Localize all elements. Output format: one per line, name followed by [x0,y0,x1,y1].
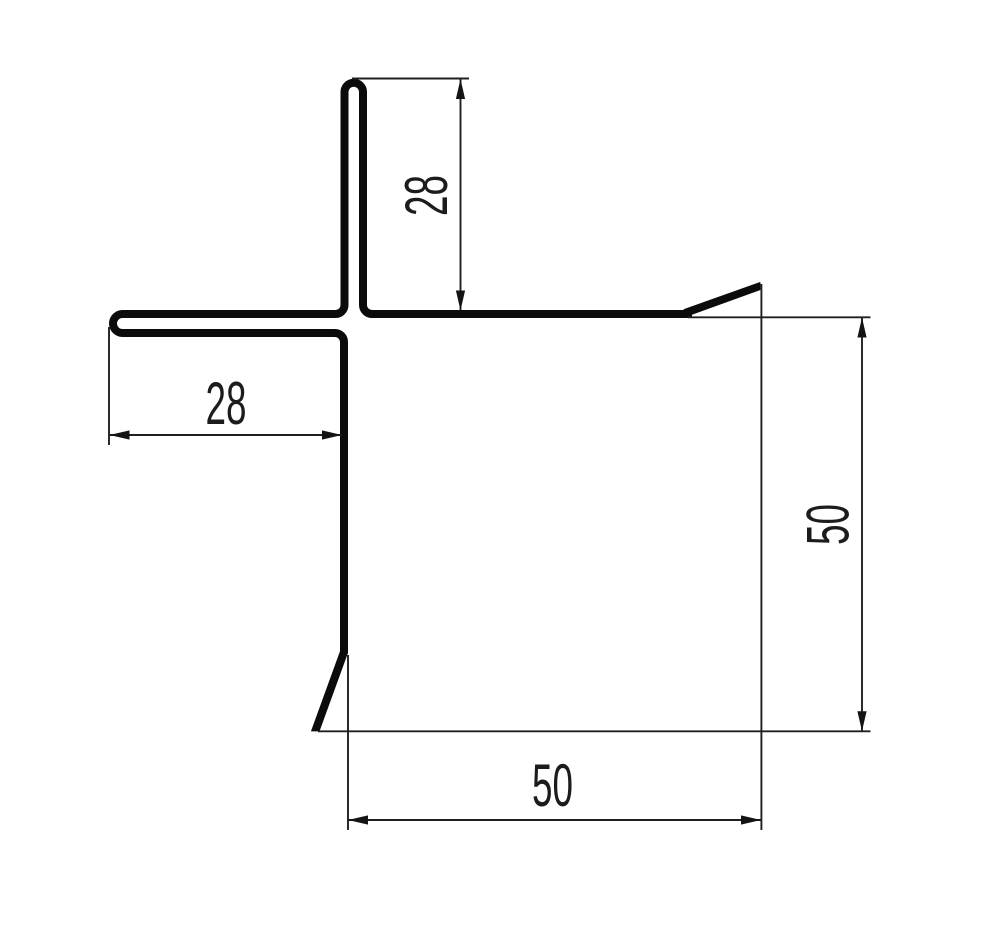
svg-text:50: 50 [795,504,862,545]
svg-text:28: 28 [206,370,247,437]
svg-text:28: 28 [393,175,460,216]
svg-text:50: 50 [532,752,573,819]
